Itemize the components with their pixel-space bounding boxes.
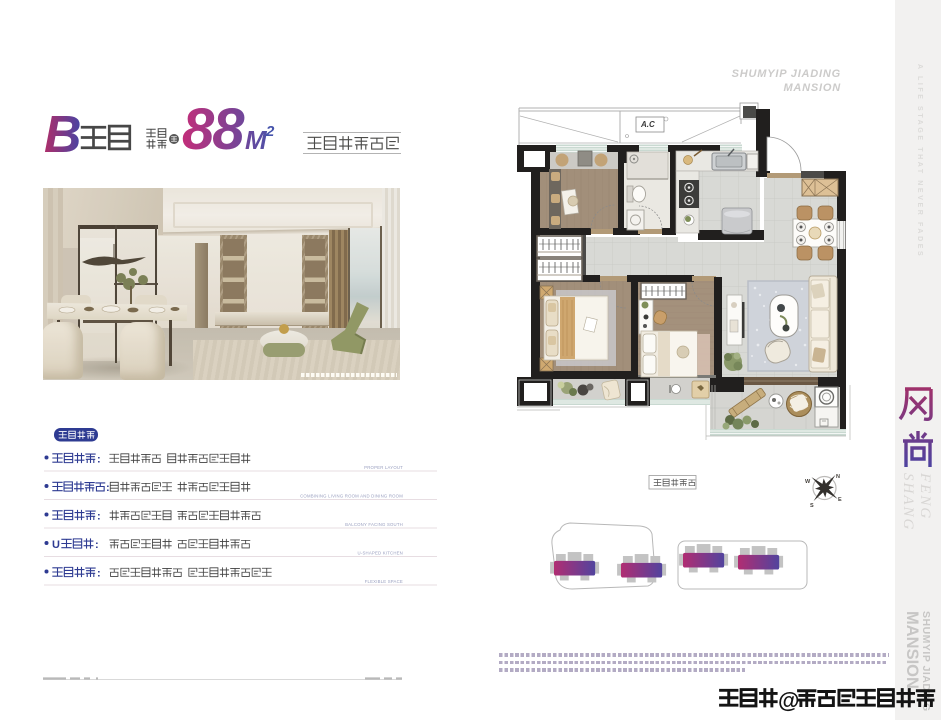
svg-text:@: @ (778, 688, 799, 713)
